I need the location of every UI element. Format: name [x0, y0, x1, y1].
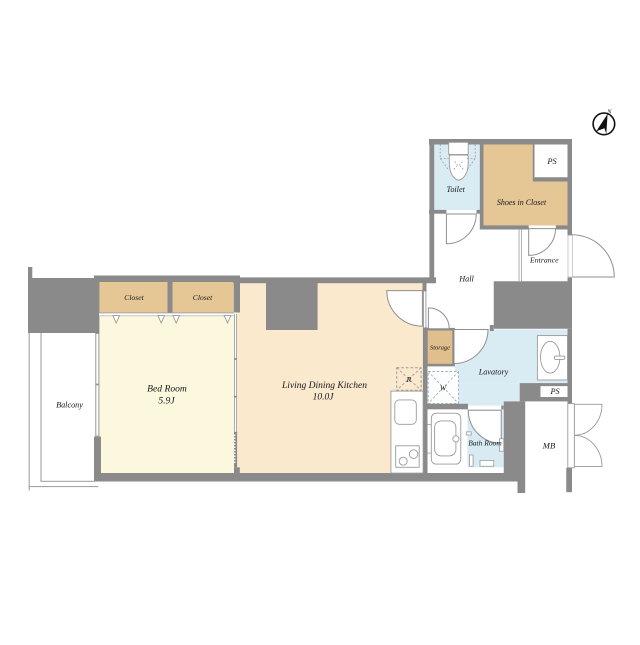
svg-text:Bed Room: Bed Room [147, 384, 187, 395]
svg-text:W: W [440, 384, 447, 393]
svg-text:Hall: Hall [458, 275, 474, 284]
svg-text:MB: MB [542, 441, 556, 451]
svg-text:Shoes in Closet: Shoes in Closet [497, 198, 547, 207]
svg-text:Bath Room: Bath Room [468, 438, 502, 447]
svg-text:Balcony: Balcony [56, 401, 83, 410]
svg-text:Living Dining Kitchen: Living Dining Kitchen [281, 381, 367, 391]
svg-text:Closet: Closet [124, 293, 144, 302]
svg-text:Entrance: Entrance [529, 256, 559, 265]
svg-text:Lavatory: Lavatory [478, 367, 509, 376]
svg-text:Closet: Closet [193, 293, 213, 302]
svg-text:R: R [406, 375, 412, 384]
svg-text:N: N [606, 109, 612, 116]
svg-text:10.0J: 10.0J [313, 393, 335, 403]
svg-text:PS: PS [549, 387, 559, 396]
svg-text:PS: PS [546, 157, 557, 166]
svg-text:5.9J: 5.9J [158, 396, 175, 407]
svg-text:Toilet: Toilet [447, 185, 466, 194]
svg-text:Storage: Storage [430, 345, 450, 352]
